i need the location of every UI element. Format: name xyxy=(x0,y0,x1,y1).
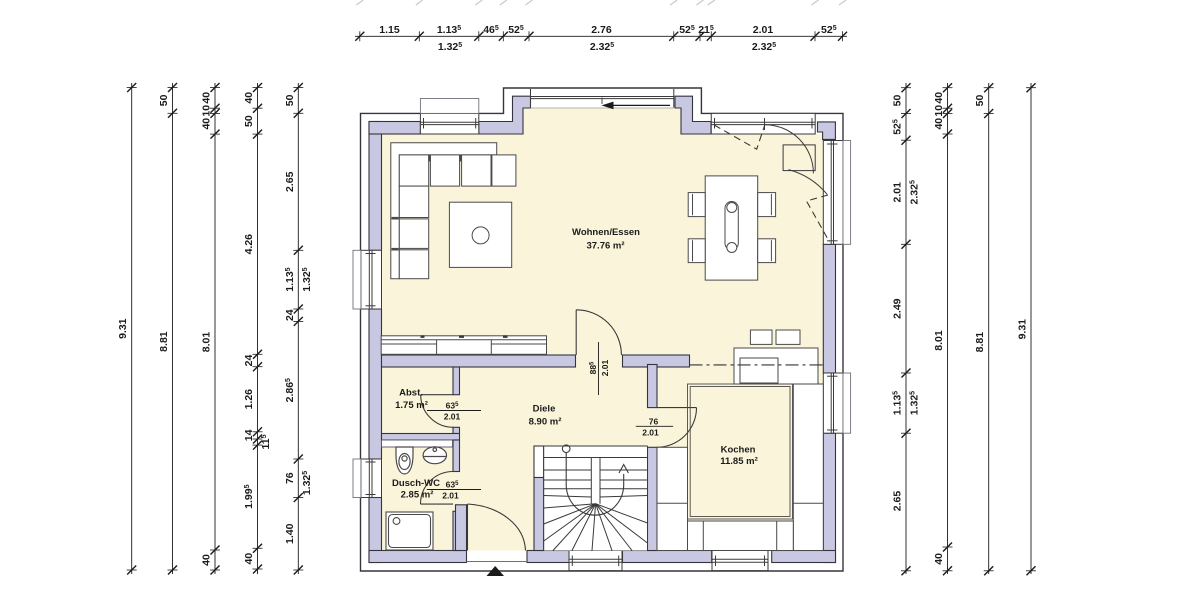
svg-text:1.15: 1.15 xyxy=(379,24,400,36)
svg-text:Diele: Diele xyxy=(533,403,556,414)
svg-text:76: 76 xyxy=(284,472,296,484)
svg-text:1.40: 1.40 xyxy=(284,523,296,544)
svg-text:2.65: 2.65 xyxy=(892,491,904,512)
svg-text:8.01: 8.01 xyxy=(933,330,945,351)
svg-text:40: 40 xyxy=(201,118,213,130)
svg-text:2.01: 2.01 xyxy=(442,491,459,501)
svg-text:40: 40 xyxy=(933,118,945,130)
svg-text:2.49: 2.49 xyxy=(892,298,904,319)
svg-text:Dusch-WC: Dusch-WC xyxy=(392,478,440,489)
svg-text:40: 40 xyxy=(201,92,213,104)
svg-text:10: 10 xyxy=(201,105,213,117)
svg-text:50: 50 xyxy=(158,94,170,106)
svg-text:40: 40 xyxy=(243,553,255,565)
svg-text:2.01: 2.01 xyxy=(753,24,774,36)
svg-text:2.85 m²: 2.85 m² xyxy=(401,489,434,500)
svg-text:24: 24 xyxy=(284,309,296,321)
svg-text:76: 76 xyxy=(649,416,659,426)
svg-text:50: 50 xyxy=(974,95,986,107)
svg-text:9.31: 9.31 xyxy=(117,318,129,339)
svg-text:1.26: 1.26 xyxy=(243,389,255,410)
svg-text:2.01: 2.01 xyxy=(642,427,659,437)
svg-text:4.26: 4.26 xyxy=(243,234,255,255)
svg-text:9.31: 9.31 xyxy=(1017,319,1029,340)
svg-text:24: 24 xyxy=(243,355,255,367)
svg-text:40: 40 xyxy=(243,92,255,104)
svg-text:8.01: 8.01 xyxy=(201,332,213,353)
svg-text:Wohnen/Essen: Wohnen/Essen xyxy=(572,227,640,238)
svg-text:40: 40 xyxy=(933,553,945,565)
svg-text:50: 50 xyxy=(284,94,296,106)
svg-text:14: 14 xyxy=(243,429,255,441)
svg-text:11.85 m²: 11.85 m² xyxy=(720,456,758,467)
svg-text:2.01: 2.01 xyxy=(444,412,461,422)
svg-text:8.81: 8.81 xyxy=(158,331,170,352)
svg-text:10: 10 xyxy=(933,105,945,117)
svg-text:2.01: 2.01 xyxy=(600,359,610,376)
svg-text:2.65: 2.65 xyxy=(284,171,296,192)
svg-text:2.01: 2.01 xyxy=(892,182,904,203)
svg-text:Kochen: Kochen xyxy=(721,444,756,455)
svg-text:Abst.: Abst. xyxy=(399,387,423,398)
svg-text:1.75 m²: 1.75 m² xyxy=(395,400,428,411)
svg-text:40: 40 xyxy=(933,92,945,104)
svg-text:37.76 m²: 37.76 m² xyxy=(586,241,624,252)
svg-text:40: 40 xyxy=(201,554,213,566)
svg-text:50: 50 xyxy=(243,115,255,127)
svg-text:50: 50 xyxy=(892,95,904,107)
svg-text:8.81: 8.81 xyxy=(974,332,986,353)
svg-text:8.90 m²: 8.90 m² xyxy=(529,416,562,427)
svg-text:2.76: 2.76 xyxy=(591,24,612,36)
